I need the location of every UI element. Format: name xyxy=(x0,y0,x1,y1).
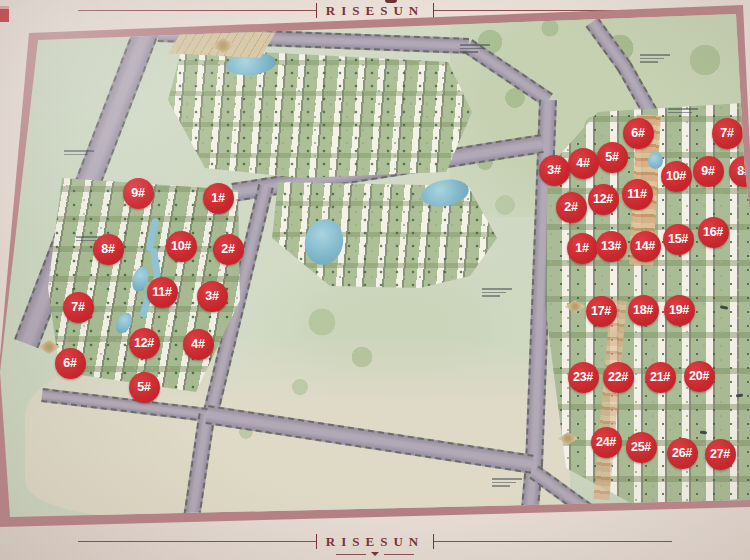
boat xyxy=(700,431,707,435)
building-badge: 17# xyxy=(586,296,617,327)
building-badge: 22# xyxy=(603,362,634,393)
annotation-text xyxy=(482,288,512,297)
annotation-text xyxy=(640,54,670,63)
building-badge: 12# xyxy=(588,184,619,215)
building-badge: 7# xyxy=(63,292,94,323)
building-badge: 12# xyxy=(129,328,160,359)
building-badge: 10# xyxy=(166,231,197,262)
building-badge: 23# xyxy=(568,362,599,393)
building-badge: 25# xyxy=(626,432,657,463)
pond xyxy=(648,152,663,169)
brand-logotype: RISESUN xyxy=(316,3,434,18)
building-badge: 18# xyxy=(628,295,659,326)
building-badge: 10# xyxy=(661,161,692,192)
building-badge: 4# xyxy=(183,329,214,360)
annotation-text xyxy=(460,44,490,53)
building-badge: 19# xyxy=(664,295,695,326)
annotation-text xyxy=(64,150,94,155)
building-badge: 27# xyxy=(705,439,736,470)
building-badge: 3# xyxy=(197,281,228,312)
building-badge: 2# xyxy=(556,192,587,223)
building-badge: 6# xyxy=(623,118,654,149)
building-badge: 1# xyxy=(567,233,598,264)
building-badge: 8# xyxy=(93,234,124,265)
bottom-ornament xyxy=(0,552,750,556)
building-badge: 11# xyxy=(147,277,178,308)
building-badge: 11# xyxy=(622,179,653,210)
building-badge: 1# xyxy=(203,183,234,214)
brand-rule-left xyxy=(78,10,316,12)
building-badge: 5# xyxy=(129,372,160,403)
brand-rule-right xyxy=(434,541,672,543)
annotation-text xyxy=(668,108,698,113)
building-badge: 15# xyxy=(663,224,694,255)
brand-bottom: RISESUN xyxy=(0,534,750,549)
building-badge: 9# xyxy=(693,156,724,187)
brand-rule-left xyxy=(78,541,316,543)
brand-logotype: RISESUN xyxy=(316,534,434,549)
building-badge: 9# xyxy=(123,178,154,209)
building-badge: 3# xyxy=(539,155,570,186)
building-badge: 20# xyxy=(684,361,715,392)
building-badge: 13# xyxy=(596,231,627,262)
building-badge: 6# xyxy=(55,348,86,379)
building-badge: 7# xyxy=(712,118,743,149)
annotation-text xyxy=(492,478,522,487)
building-badge: 24# xyxy=(591,427,622,458)
building-badge: 2# xyxy=(213,234,244,265)
building-badge: 4# xyxy=(568,148,599,179)
building-badge: 26# xyxy=(667,438,698,469)
building-badge: 5# xyxy=(597,142,628,173)
masterplan-map: 9#1#8#10#2#7#11#3#12#4#6#5# 6#7#5#4#3#10… xyxy=(0,0,750,560)
residential-cluster-north xyxy=(160,42,480,184)
building-badge: 16# xyxy=(698,217,729,248)
corner-logo xyxy=(0,6,9,22)
building-badge: 14# xyxy=(630,231,661,262)
building-badge: 21# xyxy=(645,362,676,393)
